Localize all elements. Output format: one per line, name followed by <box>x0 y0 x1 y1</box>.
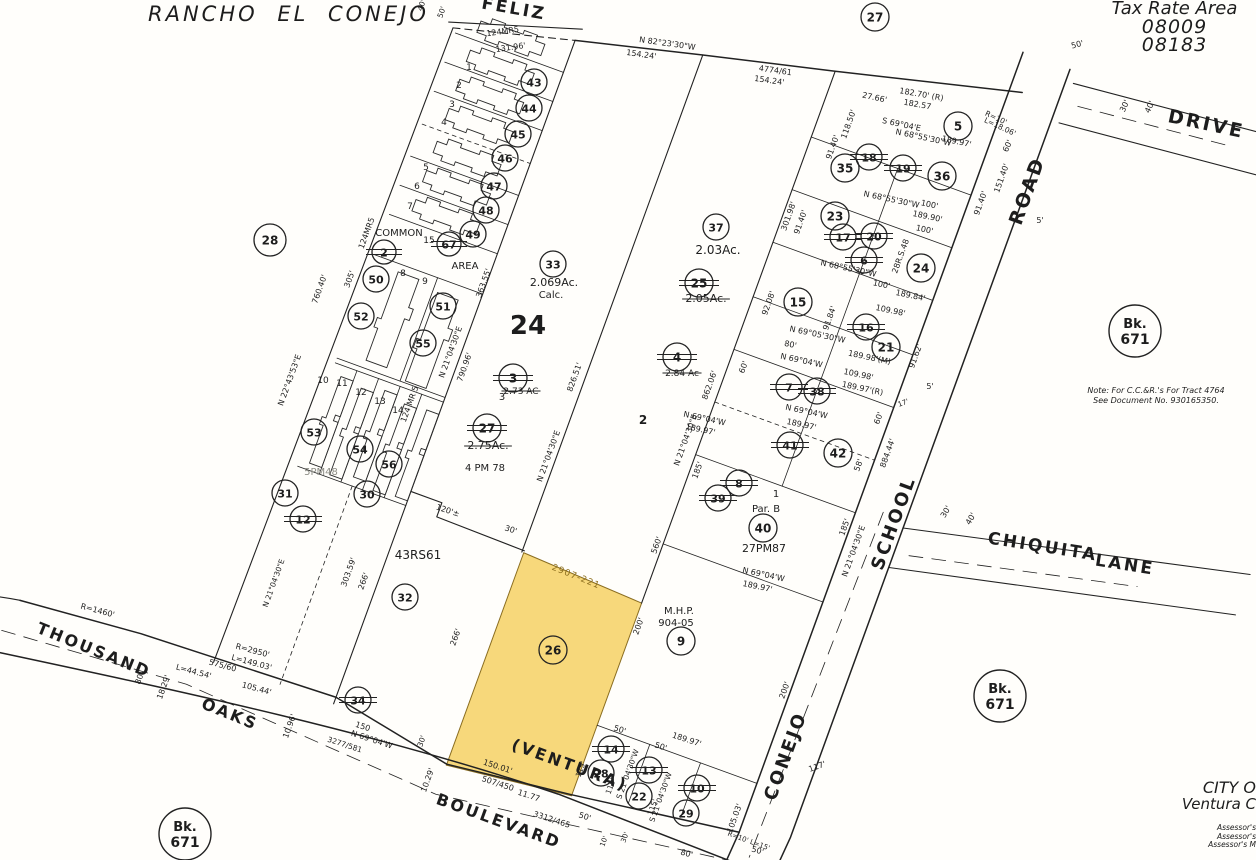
parcel-number: 4 <box>673 351 681 365</box>
parcel-number: 21 <box>878 341 895 355</box>
parcel-circle: 54 <box>347 436 373 462</box>
map-label: 5PM48 <box>304 467 338 478</box>
parcel-circle-crossed: 39 <box>699 485 737 511</box>
map-label: 2.73 AC <box>503 387 538 397</box>
parcel-circle-crossed: 7 <box>770 374 808 400</box>
parcel-circle: 28 <box>254 224 286 256</box>
map-label: 30' <box>503 523 518 535</box>
parcel-number: 22 <box>631 791 646 804</box>
map-label: 28R.S.48 <box>890 238 911 275</box>
map-label: N 21°04'30"E <box>535 429 562 483</box>
parcel-map-annotations: FELIZDRIVEROADSCHOOLCONEJOCHIQUITALANETH… <box>0 0 1256 860</box>
map-label: 3 <box>449 100 455 110</box>
map-label: 50' <box>435 5 447 19</box>
map-label: COMMON <box>375 228 422 239</box>
map-label: 117' <box>807 759 826 773</box>
parcel-number: 50 <box>368 274 384 287</box>
parcel-number: 56 <box>381 459 397 472</box>
map-label: 185' <box>690 460 704 479</box>
parcel-circle-crossed: 8 <box>720 470 758 496</box>
parcel-number: 3 <box>509 372 517 386</box>
parcel-circle-crossed: 14 <box>592 736 630 762</box>
map-label: 189.90' <box>912 209 943 224</box>
map-label: 5' <box>1036 216 1043 225</box>
parcel-number: 34 <box>350 695 366 708</box>
map-title: RANCHO EL CONEJO <box>148 2 429 26</box>
parcel-number: 41 <box>782 440 797 453</box>
parcel-number: 35 <box>837 162 854 176</box>
parcel-number: 16 <box>858 322 874 335</box>
map-label: 3 <box>499 392 505 403</box>
map-label: 9 <box>422 277 428 287</box>
map-label: 1 <box>466 63 472 73</box>
map-label: 100' <box>915 223 934 235</box>
parcel-number: 39 <box>710 493 725 506</box>
map-label: 266' <box>356 571 370 590</box>
parcel-circle-crossed: 20 <box>855 223 893 249</box>
map-label: 150.01' <box>482 758 514 776</box>
parcel-circle: 48 <box>473 197 499 223</box>
parcel-circle: 52 <box>348 303 374 329</box>
assessor-lines: Assessor's Assessor's Assessor's M <box>1182 824 1256 850</box>
tax-rate-code-2: 08183 <box>1093 36 1256 54</box>
parcel-number: 18 <box>861 152 876 165</box>
parcel-number: 27 <box>867 11 884 25</box>
map-label: 91.40' <box>792 209 809 236</box>
parcel-number: 20 <box>866 231 882 244</box>
parcel-number: 31 <box>277 488 292 501</box>
book-reference-circle: Bk.671 <box>1109 305 1161 357</box>
map-label: 91.40' <box>824 134 841 161</box>
parcel-number: 12 <box>295 514 310 527</box>
map-label: 58' <box>852 458 865 473</box>
map-label: 862.06' <box>700 369 719 400</box>
map-label: 80' <box>784 339 798 350</box>
map-label: 189.84' <box>895 288 926 303</box>
map-label: 200' <box>631 616 645 635</box>
parcel-number: 23 <box>827 210 844 224</box>
parcel-number: 5 <box>954 120 962 134</box>
map-label: 118.50' <box>839 108 858 139</box>
parcel-circle-crossed: 34 <box>339 687 377 713</box>
map-label: 27PM87 <box>742 542 786 555</box>
map-label: THOUSAND <box>34 618 154 681</box>
map-label: 8 <box>400 269 406 279</box>
book-reference-circle: Bk.671 <box>159 808 211 860</box>
parcel-circle: 37 <box>703 214 729 240</box>
map-label: 884.44' <box>878 437 897 468</box>
parcel-number: 45 <box>510 129 525 142</box>
parcel-circle: 30 <box>354 481 380 507</box>
city-county-stamp: CITY O Ventura C Assessor's Assessor's A… <box>1182 779 1256 850</box>
map-label: R=1460' <box>80 602 116 620</box>
parcel-number: 17 <box>835 232 850 245</box>
parcel-number: 13 <box>641 765 656 778</box>
map-label: Calc. <box>539 290 564 301</box>
book-number: 671 <box>1120 332 1149 348</box>
map-label: 30' <box>415 734 427 748</box>
map-label: 10 <box>317 376 329 386</box>
parcel-number: 42 <box>830 447 847 461</box>
map-label: AREA <box>452 261 479 272</box>
book-number: 671 <box>170 835 199 851</box>
parcel-circle: 50 <box>363 266 389 292</box>
map-label: N 21°04'30"E <box>261 558 287 609</box>
parcel-circle: 36 <box>928 162 956 190</box>
parcel-circle-crossed: 27 <box>467 414 507 442</box>
parcel-circle: 33 <box>540 251 566 277</box>
parcel-circle: 47 <box>481 173 507 199</box>
book-number: 671 <box>985 697 1014 713</box>
parcel-number: 55 <box>415 338 430 351</box>
map-label: N 68°55'30"W <box>820 258 878 279</box>
parcel-circle: 51 <box>430 293 456 319</box>
map-label: 151.40' <box>992 162 1011 193</box>
parcel-number: 52 <box>353 311 368 324</box>
map-label: 189.97'(R) <box>841 380 884 398</box>
book-reference-circle: Bk.671 <box>974 670 1026 722</box>
map-label: 10.96' <box>281 713 298 740</box>
book-label: Bk. <box>988 682 1012 697</box>
parcel-number: 6 <box>860 255 868 268</box>
parcel-number: 37 <box>708 222 723 235</box>
map-label: 60' <box>737 360 750 375</box>
map-label: Par. B <box>752 504 780 515</box>
map-label: 5' <box>926 382 933 391</box>
parcel-number: 47 <box>486 181 501 194</box>
map-label: 92.08' <box>760 290 777 317</box>
map-label: 154.24' <box>754 74 785 87</box>
map-label: 17' <box>897 397 910 408</box>
map-label: 790.96' <box>455 351 474 382</box>
map-label: OAKS <box>199 694 261 734</box>
parcel-circle-crossed: 38 <box>798 378 836 404</box>
map-label: 30' <box>620 831 631 844</box>
map-label: 5 <box>423 163 429 173</box>
map-label: N 22°43'53"E <box>276 353 303 407</box>
assessor-line-3: Assessor's M <box>1182 841 1256 850</box>
parcel-circle-crossed: 10 <box>678 775 716 801</box>
map-label: 2907-221 <box>550 563 601 592</box>
map-label: SCHOOL <box>867 473 920 573</box>
city-line: CITY O <box>1182 779 1256 796</box>
map-label: 1 <box>773 489 779 500</box>
parcel-circle: 35 <box>831 154 859 182</box>
map-label: 2 <box>456 81 462 91</box>
map-label: 27.66' <box>861 91 887 105</box>
map-label: M.H.P. <box>664 606 694 617</box>
parcel-number: 24 <box>913 262 930 276</box>
map-label: 200' <box>777 680 791 699</box>
parcel-circle: 55 <box>410 330 436 356</box>
map-label: 507/450 <box>481 774 515 793</box>
parcel-number: 15 <box>790 296 807 310</box>
map-label: 189.97' <box>671 731 703 749</box>
parcel-circle-crossed: 18 <box>850 144 888 170</box>
ccr-note-line2: See Document No. 930165350. <box>1056 396 1256 406</box>
parcel-number: 8 <box>735 478 743 491</box>
parcel-number: 40 <box>755 522 772 536</box>
parcel-number: 43 <box>526 77 541 90</box>
map-label: 4 <box>441 118 447 128</box>
map-label: 50' <box>653 740 668 752</box>
map-label: 6 <box>414 182 420 192</box>
map-label: 131.96' <box>495 41 526 54</box>
parcel-circle: 31 <box>272 480 298 506</box>
book-label: Bk. <box>1123 317 1147 332</box>
map-label: N 82°23'30"W <box>639 35 697 52</box>
parcel-circle: 42 <box>824 439 852 467</box>
parcel-number: 67 <box>441 239 456 252</box>
map-label: 60' <box>872 411 885 426</box>
parcel-number: 38 <box>809 386 824 399</box>
map-label: 50' <box>750 845 764 857</box>
map-label: 60' <box>1001 138 1014 153</box>
map-label: 91.40' <box>972 190 989 217</box>
map-label: 4 PM 78 <box>465 463 505 474</box>
parcel-circle: 24 <box>907 254 935 282</box>
parcel-circle: 44 <box>516 95 542 121</box>
map-label: 2 <box>639 413 647 427</box>
map-label: 2.03Ac. <box>695 243 740 257</box>
parcel-circle: 56 <box>376 451 402 477</box>
parcel-number: 53 <box>306 427 321 440</box>
parcel-circle: 22 <box>626 783 652 809</box>
map-label: 12 <box>355 388 366 398</box>
map-label: 40' <box>1143 99 1156 114</box>
parcel-circle: 27 <box>861 3 889 31</box>
county-line: Ventura C <box>1182 796 1256 812</box>
map-label: 10.29' <box>419 767 436 794</box>
map-label: 100' <box>872 278 891 290</box>
parcel-circle: 40 <box>749 514 777 542</box>
map-label: 189.97' <box>742 579 773 594</box>
map-label: 266' <box>448 627 462 646</box>
map-label: 154.24' <box>626 48 657 61</box>
parcel-circle: 15 <box>784 288 812 316</box>
map-label: 363.55' <box>474 267 493 298</box>
parcel-number: 19 <box>895 163 910 176</box>
map-label: N 68°55'30"W <box>863 189 921 210</box>
map-label: 50' <box>577 810 592 822</box>
map-label: 91.84' <box>821 305 838 332</box>
parcel-circle-crossed: 12 <box>284 506 322 532</box>
parcel-number: 46 <box>497 153 513 166</box>
parcel-circle: 53 <box>301 419 327 445</box>
map-label: 50' <box>612 723 627 735</box>
map-label: 560' <box>649 535 663 554</box>
map-label: 120'± <box>435 503 461 519</box>
parcel-number: 51 <box>435 301 450 314</box>
map-label: 24 <box>510 311 546 341</box>
parcel-circle: 43 <box>521 69 547 95</box>
map-label: 80' <box>679 848 693 860</box>
parcel-circle: 9 <box>667 627 695 655</box>
parcel-number: 26 <box>545 644 562 658</box>
map-label: 105.03' <box>725 802 744 833</box>
parcel-number: 10 <box>689 783 705 796</box>
parcel-number: 7 <box>785 382 793 395</box>
ccr-note: Note: For C.C.&R.'s For Tract 4764 See D… <box>1056 386 1256 406</box>
map-label: 124 MR 5 <box>399 385 420 424</box>
ccr-note-line1: Note: For C.C.&R.'s For Tract 4764 <box>1056 386 1256 396</box>
map-label: 7 <box>407 202 413 212</box>
map-label: 13 <box>374 397 385 407</box>
map-label: 43RS61 <box>395 548 442 562</box>
parcel-number: 33 <box>545 259 560 272</box>
parcel-number: 54 <box>352 444 368 457</box>
map-label: FELIZ <box>480 0 548 25</box>
parcel-circle: 5 <box>944 112 972 140</box>
parcel-circle: 45 <box>505 121 531 147</box>
parcel-number: 36 <box>934 170 951 184</box>
map-label: 30' <box>1118 98 1131 113</box>
parcel-number: 2 <box>380 247 388 260</box>
map-label: 100' <box>920 198 939 210</box>
map-label: CHIQUITA <box>986 528 1099 565</box>
parcel-circle: 49 <box>460 221 486 247</box>
map-label: 50' <box>1070 39 1084 51</box>
map-label: 185' <box>837 517 851 536</box>
map-label: L=44.54' <box>175 663 212 681</box>
parcel-circle-crossed: 2 <box>366 240 402 264</box>
parcel-number: 14 <box>603 744 619 757</box>
parcel-number: 32 <box>397 592 412 605</box>
parcel-circle-crossed: 41 <box>771 432 809 458</box>
parcel-number: 28 <box>593 768 608 781</box>
map-label: N 69°04'W <box>780 352 824 370</box>
parcel-number: 30 <box>359 489 375 502</box>
map-label: LANE <box>1094 551 1156 580</box>
parcel-circle: 26 <box>539 636 567 664</box>
map-label: 2.069Ac. <box>530 276 578 289</box>
map-label: 303.59' <box>339 556 358 587</box>
tax-rate-area-block: Tax Rate Area 08009 08183 <box>1093 0 1256 54</box>
parcel-number: 49 <box>465 229 480 242</box>
map-label: 109.98' <box>875 303 906 318</box>
map-label: CONEJO <box>760 709 811 803</box>
map-label: 40' <box>964 511 978 526</box>
parcel-circle: 46 <box>492 145 518 171</box>
map-label: 18.29' <box>155 674 172 701</box>
map-label: 760.40' <box>310 273 329 304</box>
parcel-number: 28 <box>262 234 279 248</box>
book-label: Bk. <box>173 820 197 835</box>
map-label: 11.77 <box>516 788 541 804</box>
map-label: 105.44' <box>241 680 273 697</box>
map-label: 826.51' <box>565 361 584 392</box>
parcel-number: 9 <box>677 635 685 649</box>
parcel-number: 48 <box>478 205 493 218</box>
parcel-circle: 29 <box>673 800 699 826</box>
map-label: 189.97' <box>786 417 817 432</box>
map-label: 305' <box>342 269 356 288</box>
parcel-number: 44 <box>521 103 537 116</box>
assessor-parcel-map-page: FELIZDRIVEROADSCHOOLCONEJOCHIQUITALANETH… <box>0 0 1256 860</box>
parcel-number: 25 <box>691 277 708 291</box>
parcel-circle-crossed: 19 <box>884 155 922 181</box>
parcel-circle-crossed: 4 <box>657 343 697 371</box>
map-label: 30' <box>939 504 953 519</box>
map-label: DRIVE <box>1166 105 1247 143</box>
parcel-number: 29 <box>678 808 693 821</box>
map-label: N 21°04'30"E <box>672 413 699 467</box>
parcel-circle: 23 <box>821 202 849 230</box>
parcel-circle-crossed: 67 <box>431 232 467 256</box>
map-label: 91.62' <box>907 343 924 370</box>
parcel-circle: 32 <box>392 584 418 610</box>
parcel-number: 27 <box>479 422 496 436</box>
map-label: 11 <box>336 379 347 389</box>
map-label: 124MR5 <box>486 25 520 38</box>
parcel-circle-crossed: 16 <box>847 314 885 340</box>
map-label: 10' <box>599 835 610 848</box>
